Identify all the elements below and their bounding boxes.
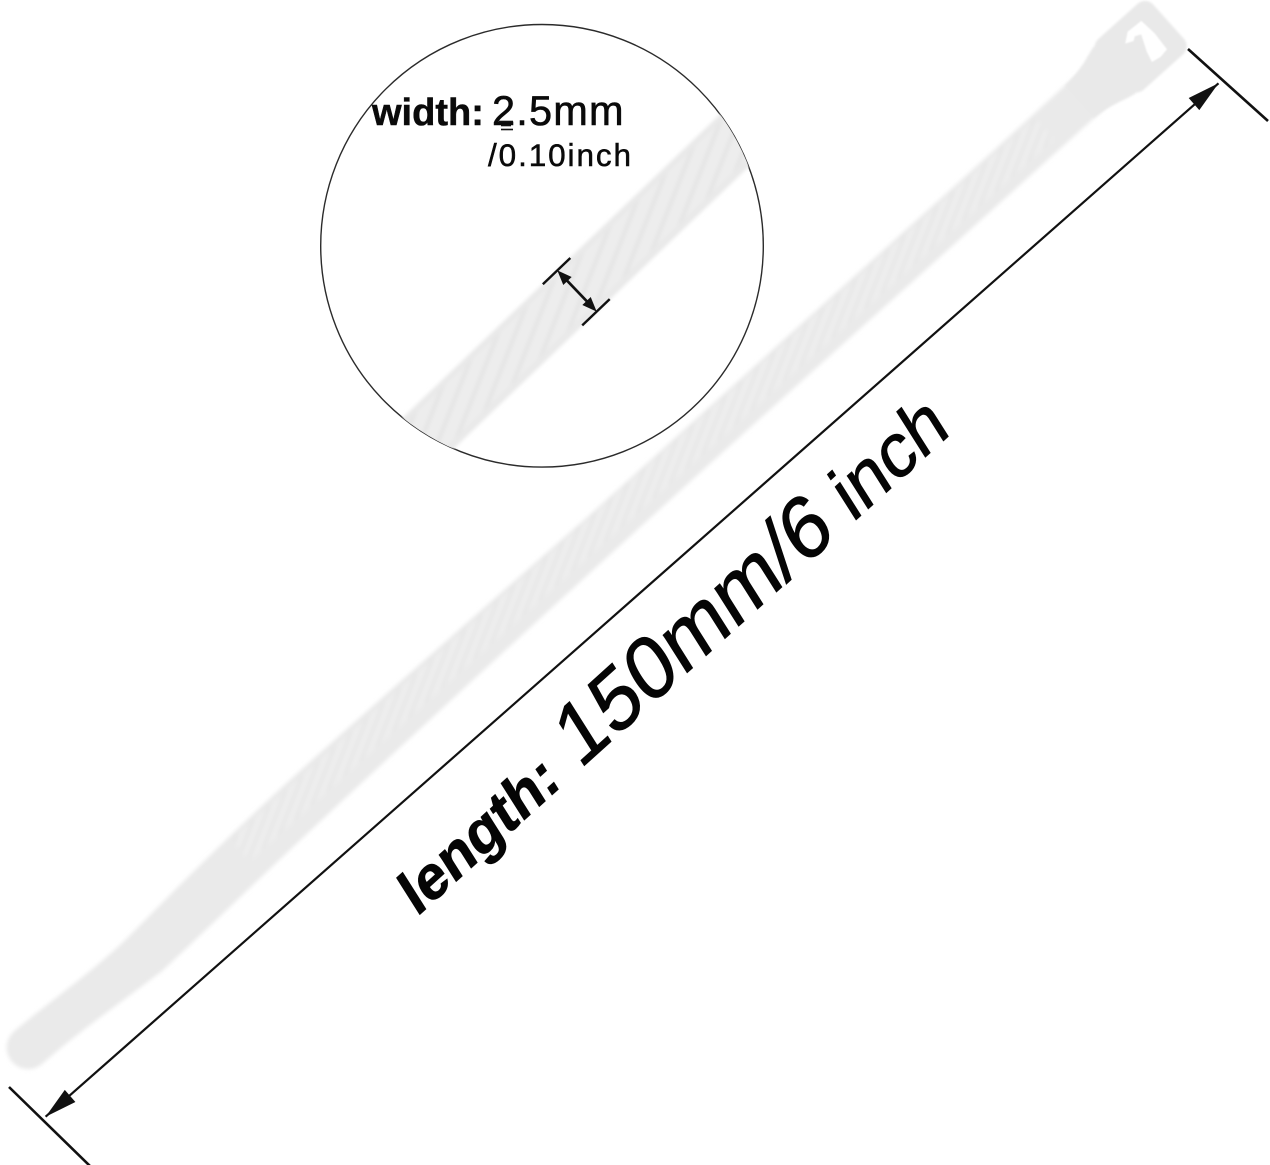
svg-text:2.5mm: 2.5mm [492,87,625,134]
svg-text:width:: width: [371,92,484,134]
svg-text:/0.10inch: /0.10inch [488,137,633,173]
